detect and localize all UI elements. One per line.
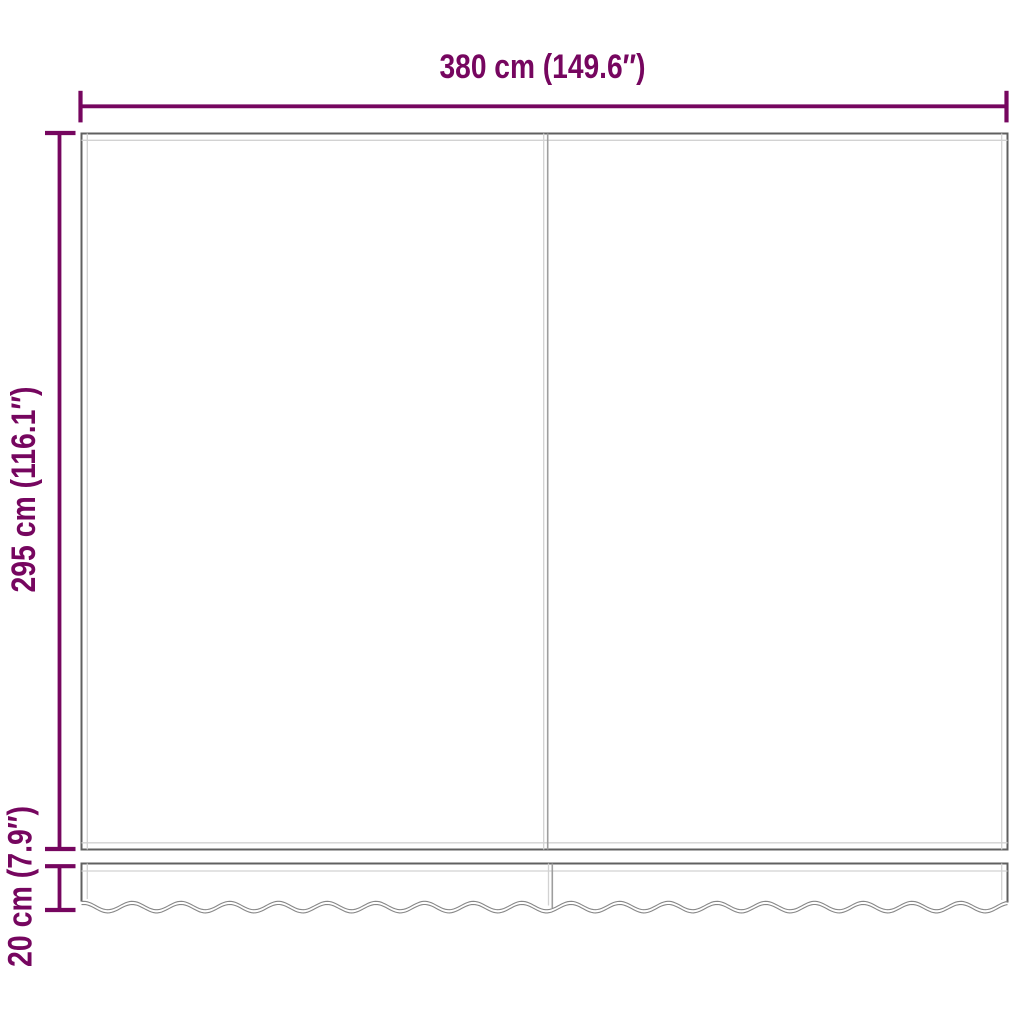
svg-text:295 cm (116.1″): 295 cm (116.1″) — [5, 387, 43, 593]
svg-text:380 cm (149.6″): 380 cm (149.6″) — [440, 48, 646, 86]
svg-text:20 cm (7.9″): 20 cm (7.9″) — [2, 806, 40, 967]
